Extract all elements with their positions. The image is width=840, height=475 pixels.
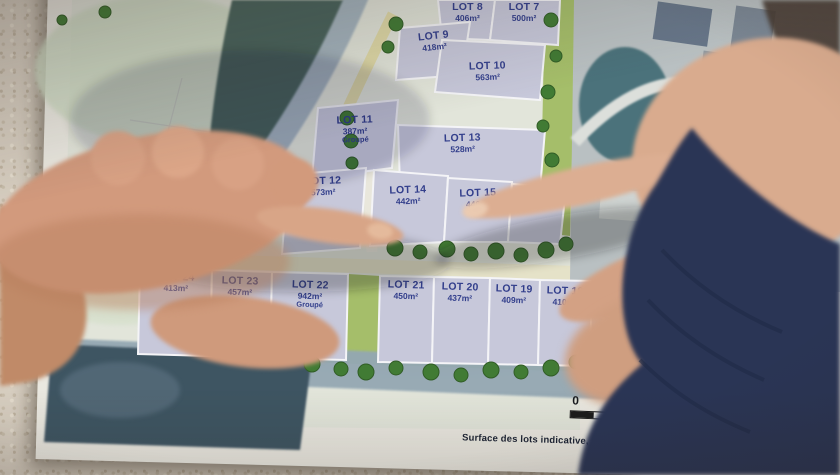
hands-overlay [0, 0, 840, 475]
photo-of-subdivision-plan: LOT 8 406m² LOT 7 500m² LOT 9 418m² LOT … [0, 0, 840, 475]
